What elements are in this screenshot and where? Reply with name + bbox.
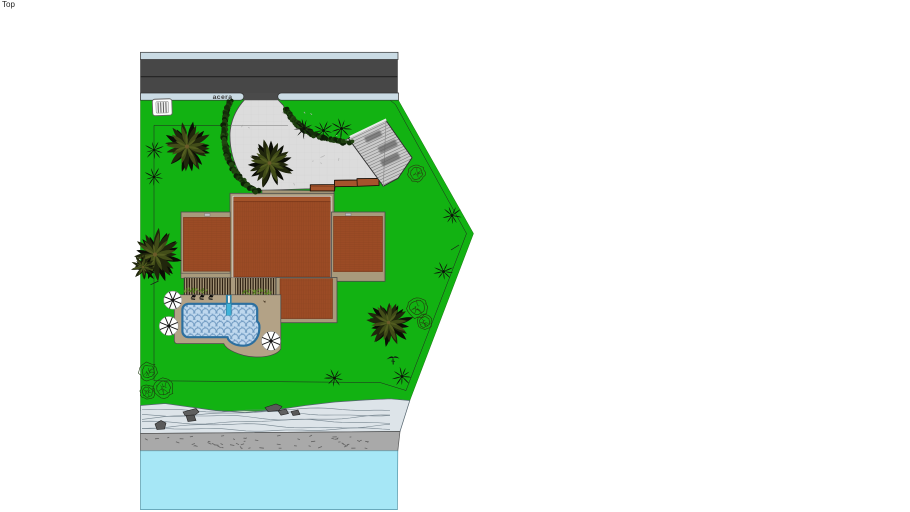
svg-text:Top: Top (2, 0, 15, 9)
svg-text:acera: acera (213, 94, 233, 101)
